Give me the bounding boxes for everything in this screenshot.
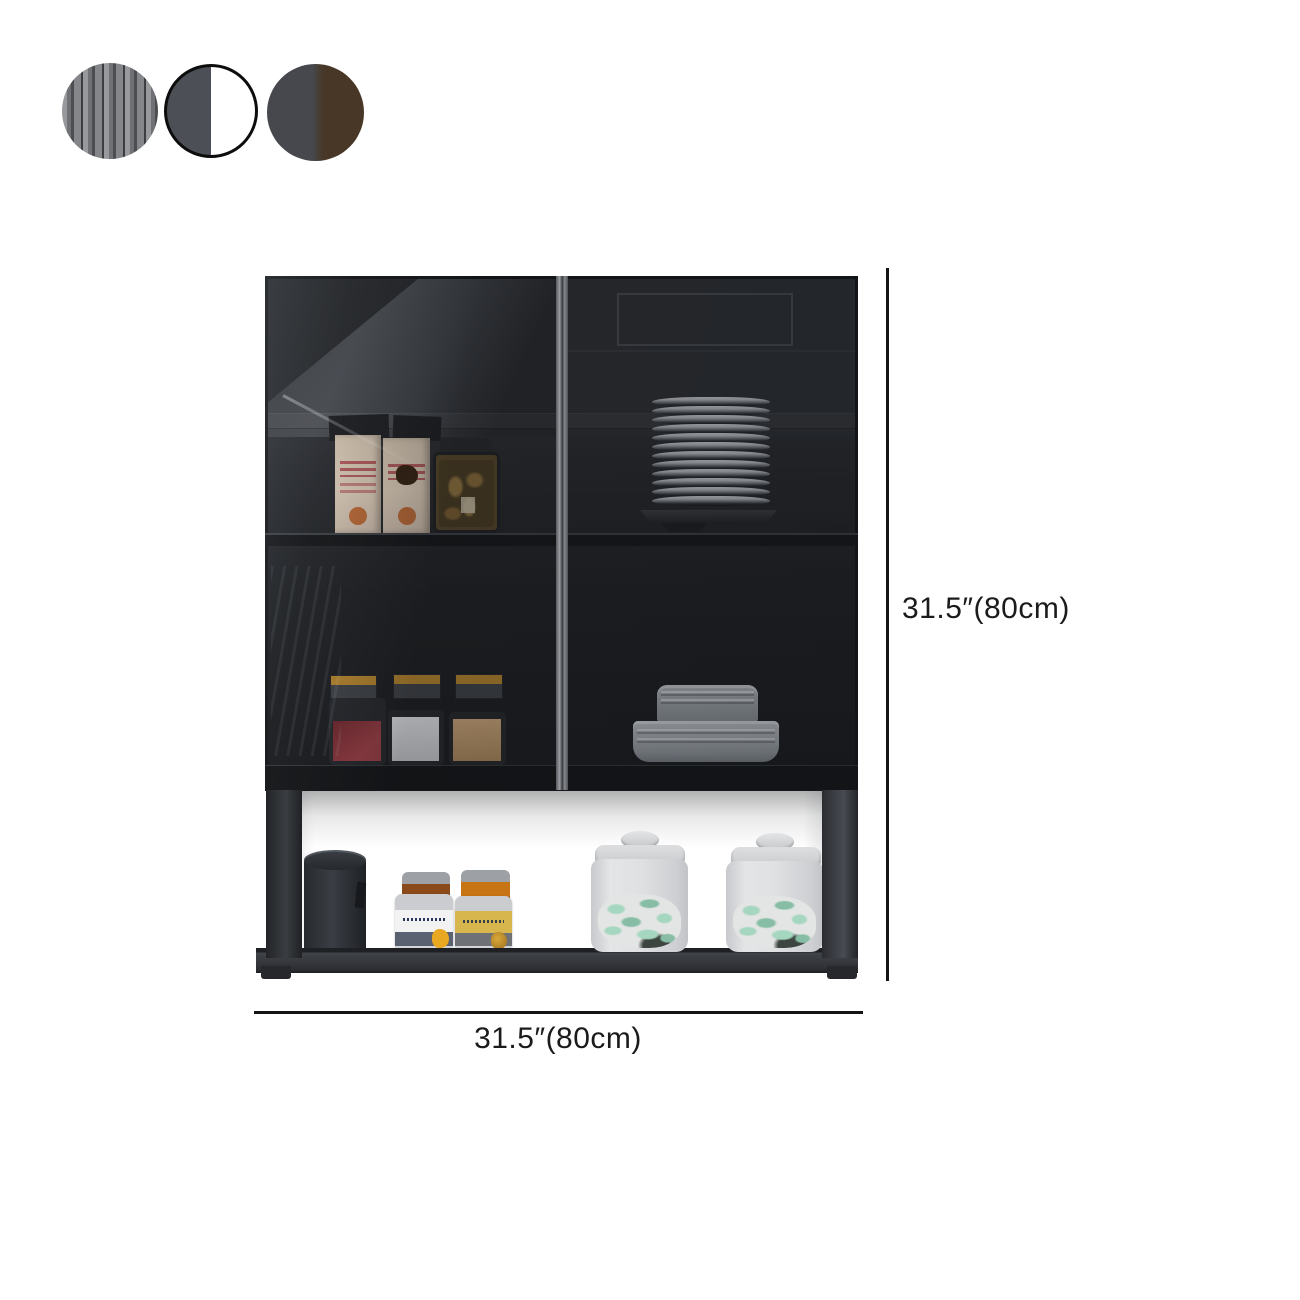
plate [652, 496, 770, 506]
shelf-side-right [822, 790, 858, 958]
bowl-ridges [661, 691, 754, 705]
cabinet-render [0, 0, 1300, 1300]
box-label-dot [398, 507, 416, 525]
plate-stack-base [640, 510, 777, 524]
glass-hutch [265, 276, 858, 790]
green-pasta [598, 894, 681, 948]
bowl-stack-upper [657, 685, 758, 722]
height-dimension-line [886, 268, 889, 981]
canister-front [453, 719, 501, 761]
cracker-jar-contents [439, 460, 494, 527]
product-image-canvas: 31.5″(80cm) 31.5″(80cm) [0, 0, 1300, 1300]
glass-jar [393, 674, 441, 699]
dark-canister-lid [304, 850, 366, 870]
width-dimension-label: 31.5″(80cm) [428, 1022, 688, 1056]
snack-box [335, 435, 381, 533]
box-label-art [396, 465, 418, 485]
canister-red [329, 698, 386, 765]
spice-label-art [432, 929, 449, 948]
cracker-jar-label [461, 497, 475, 513]
spice-label-text [463, 920, 504, 923]
plate-stack-foot [660, 523, 708, 532]
box-label-dot [349, 507, 367, 525]
box-label-text [340, 483, 377, 493]
green-pasta [733, 896, 816, 949]
door-divider [556, 276, 568, 790]
canister-tan [449, 712, 506, 765]
pasta-jar [591, 859, 688, 952]
bowl-stack-lower [633, 721, 779, 762]
shelf-foot [827, 966, 857, 979]
height-dimension-label: 31.5″(80cm) [902, 592, 1070, 626]
box-label-text [340, 461, 377, 477]
glass-jar [330, 675, 377, 699]
bowl-ridges [637, 729, 774, 747]
canister-white [388, 710, 444, 765]
canister-front [333, 721, 381, 761]
glass-jar [455, 674, 503, 699]
cracker-jar [433, 452, 500, 533]
spice-label-text [403, 918, 445, 921]
width-dimension-line [254, 1011, 863, 1014]
pasta-jar [726, 861, 823, 952]
snack-box [383, 438, 430, 533]
spice-jar-front [455, 896, 512, 952]
canister-front [392, 717, 439, 761]
shelf-foot [261, 966, 291, 979]
ceiling-panel-outline [617, 293, 793, 346]
box-flap [393, 415, 442, 441]
spice-label-art [491, 932, 507, 949]
spice-jar-front [395, 894, 453, 952]
plate-stack [652, 398, 770, 510]
backwall-line [558, 350, 855, 352]
shelf-side-left [266, 790, 302, 958]
